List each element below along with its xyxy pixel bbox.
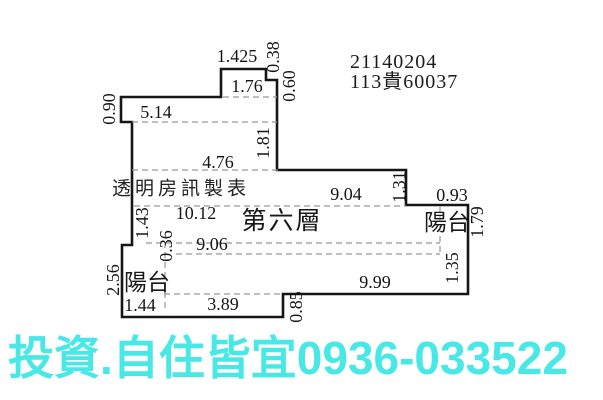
dim-main-width-b: 10.12 [176,204,217,222]
dim-upper-room-width: 5.14 [140,103,172,121]
reference-number-line1: 21140204 [350,52,458,72]
dim-bottom-seg-a: 1.44 [124,296,156,314]
dim-right-wall-lower: 1.35 [443,252,461,284]
dim-bottom-seg-b: 3.89 [207,295,239,313]
dim-bottom-step: 0.85 [287,291,305,323]
dim-left-wall-upper: 0.90 [100,93,118,125]
dim-left-wall-mid: 1.43 [133,207,151,239]
dim-right-balcony-width: 0.93 [436,186,468,204]
dim-right-balcony-depth: 1.79 [468,206,486,238]
dim-top-width: 1.425 [217,47,258,65]
banner-text: 投資.自住皆宜0936-033522 [8,333,568,384]
dim-left-balcony-depth: 2.56 [104,264,122,296]
dim-offset-gap: 0.36 [157,230,175,262]
dim-lower-width: 9.06 [196,235,228,253]
dim-top-inner-width: 1.76 [231,77,263,95]
dim-right-wall-mid: 1.81 [254,127,272,159]
balcony-label-right: 陽台 [424,203,470,237]
dim-top-right-step: 0.38 [264,41,282,73]
dim-right-wall-upper: 0.60 [280,70,298,102]
watermark-text: 透明房訊製表 [112,174,250,201]
floor-label: 第六層 [241,201,322,237]
floor-plan-page: 1.425 1.76 5.14 4.76 9.04 0.93 10.12 9.0… [0,0,603,400]
reference-number-line2: 113貴60037 [350,72,458,92]
dim-bottom-width: 9.99 [359,273,391,291]
dim-mid-room-width: 4.76 [202,153,234,171]
reference-numbers: 21140204 113貴60037 [350,52,458,92]
balcony-label-left: 陽台 [124,263,170,297]
dim-main-width-a: 9.04 [330,185,362,203]
dim-right-step-down: 1.31 [390,171,408,203]
